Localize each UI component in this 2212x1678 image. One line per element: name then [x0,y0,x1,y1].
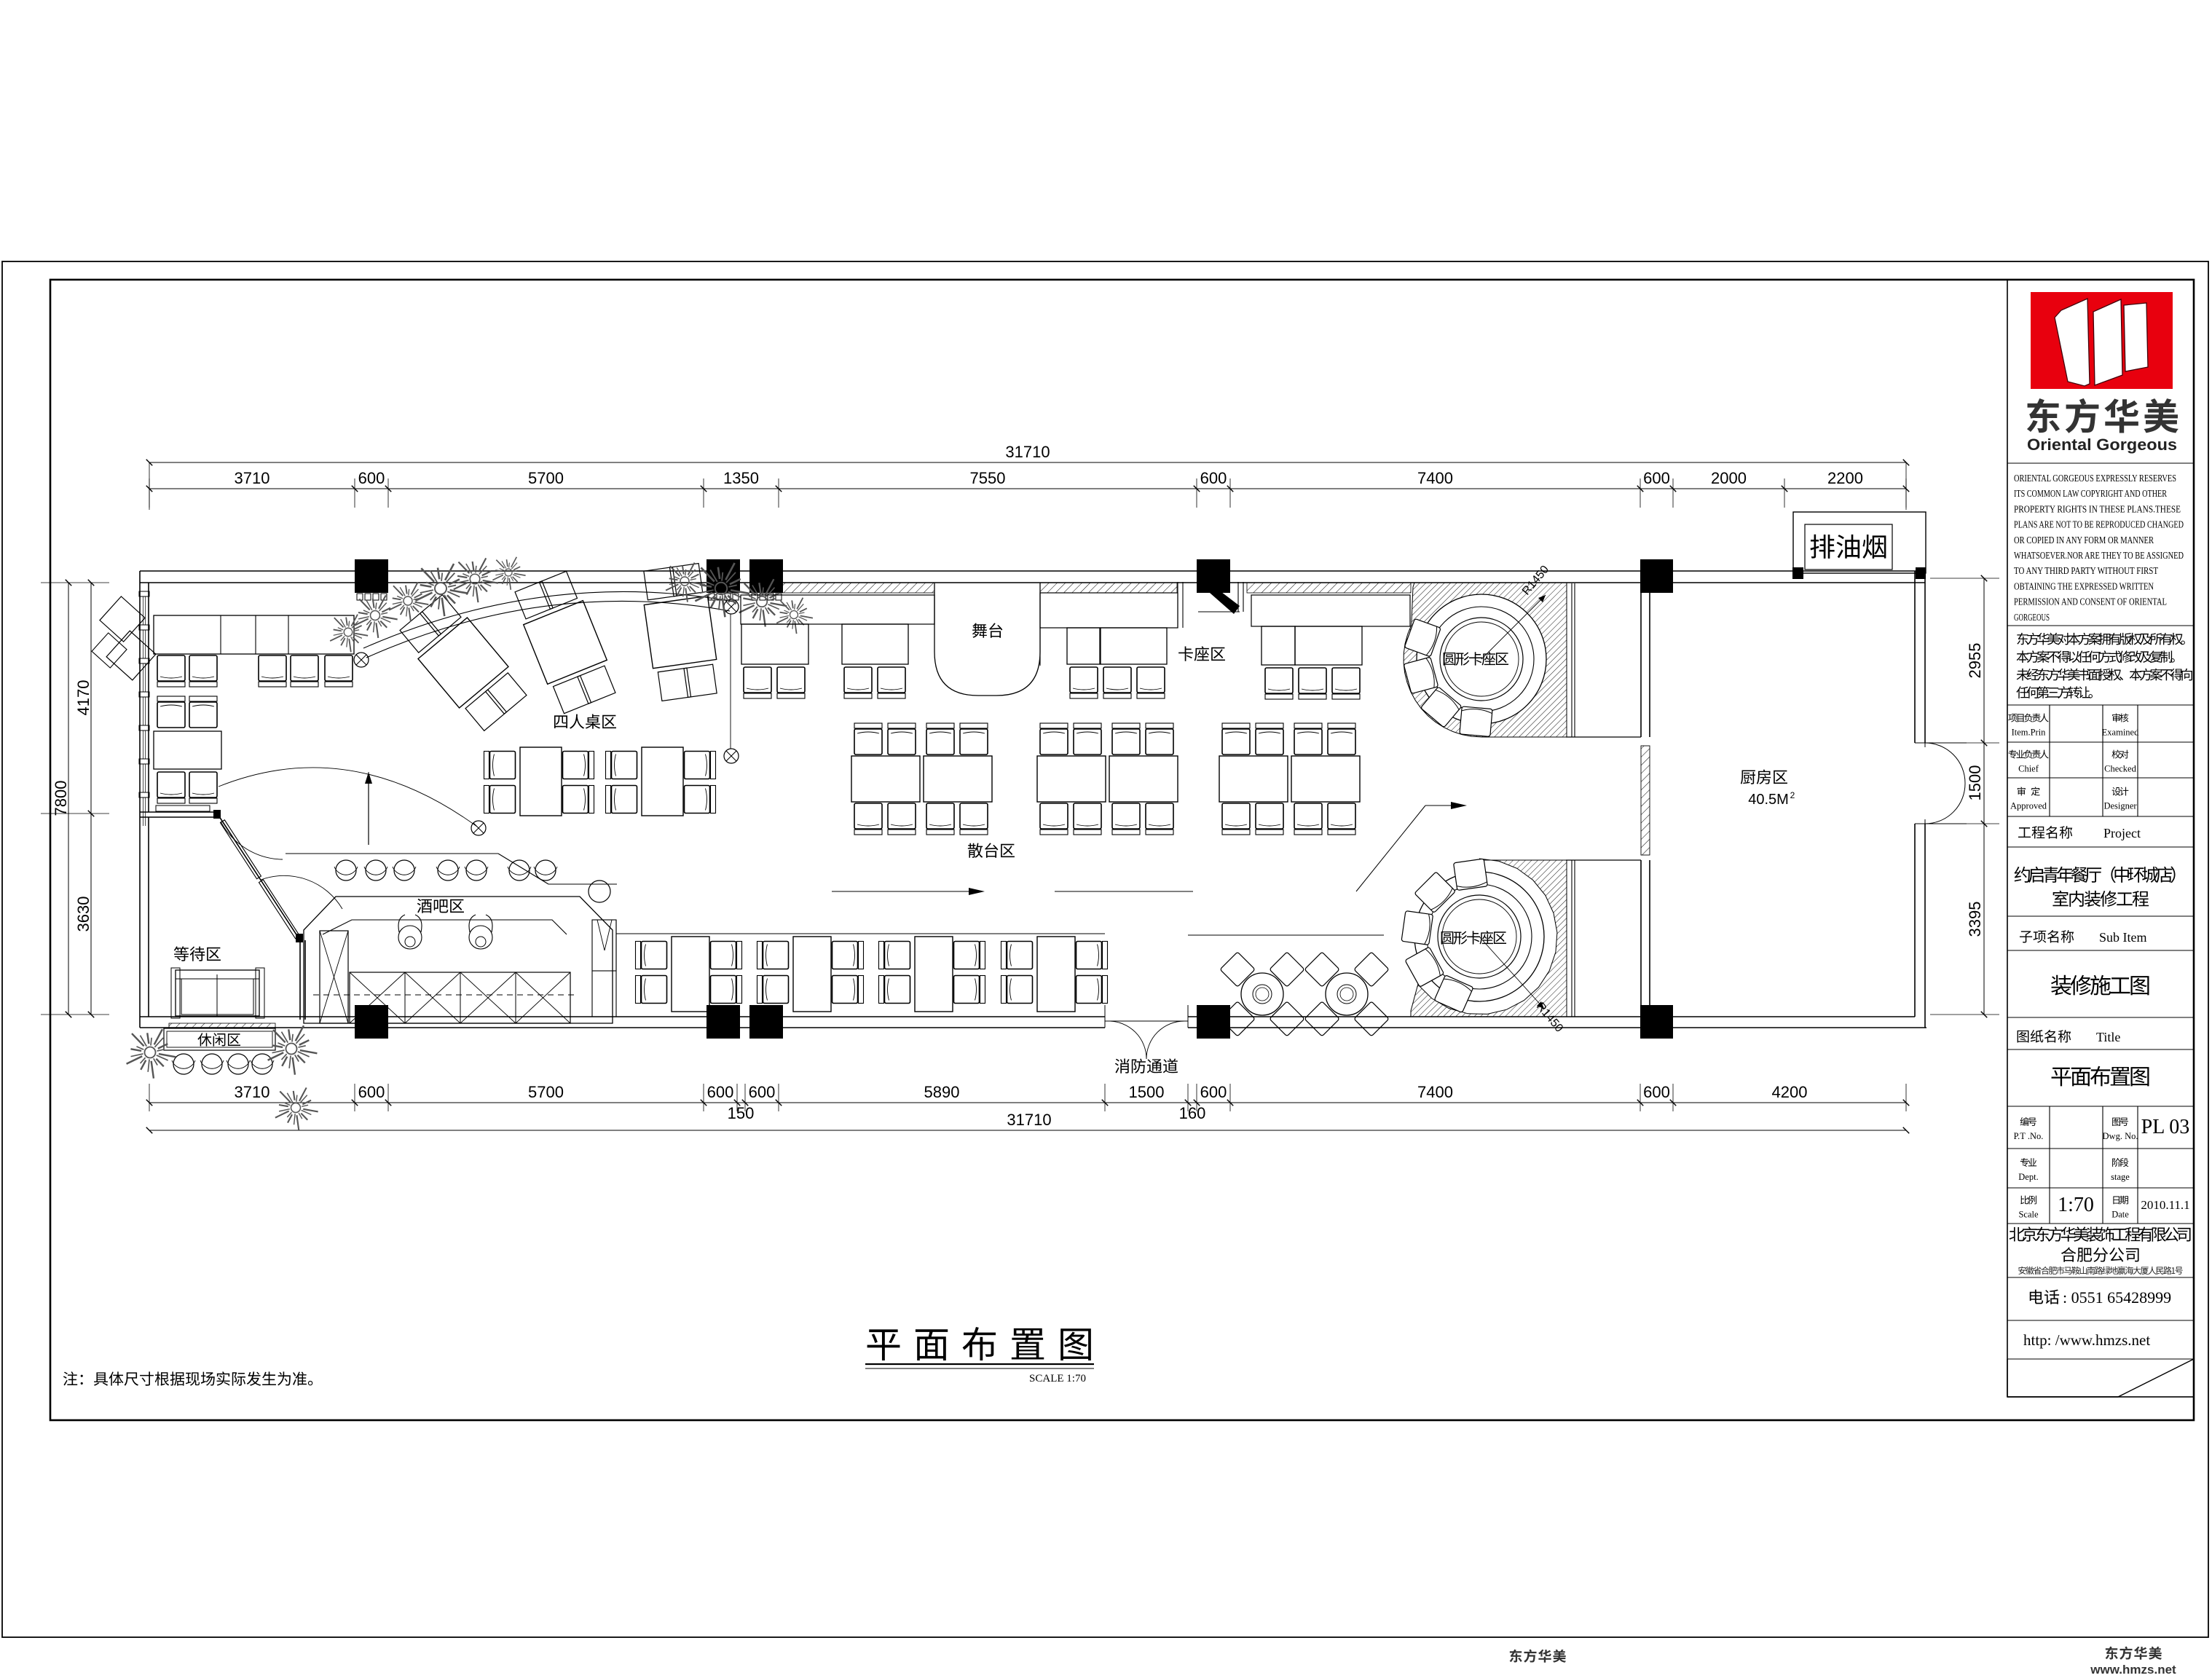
svg-text:600: 600 [1200,1083,1227,1101]
svg-text:600: 600 [358,469,385,487]
svg-text:5700: 5700 [528,1083,564,1101]
svg-text:7800: 7800 [52,781,70,816]
svg-text:1500: 1500 [1966,765,1984,801]
svg-text:160: 160 [1179,1104,1206,1122]
svg-text:ORIENTAL GORGEOUS EXPRESSLY RE: ORIENTAL GORGEOUS EXPRESSLY RESERVES [2014,473,2176,484]
svg-text:600: 600 [1643,1083,1670,1101]
svg-text:Approved: Approved [2010,801,2047,811]
svg-text:P.T .No.: P.T .No. [2014,1131,2044,1141]
svg-text:SCALE 1:70: SCALE 1:70 [1029,1373,1086,1384]
svg-text:: 0551 65428999: : 0551 65428999 [2063,1288,2171,1307]
svg-text:Designer: Designer [2103,801,2137,811]
svg-text:4170: 4170 [74,680,93,716]
svg-text:7550: 7550 [970,469,1006,487]
svg-text:http: /www.hmzs.net: http: /www.hmzs.net [2023,1331,2150,1349]
svg-text:PROPERTY RIGHTS IN THESE PLAN: PROPERTY RIGHTS IN THESE PLANS.THESE [2014,503,2181,514]
svg-text:Item.Prin: Item.Prin [2012,728,2047,738]
svg-text:Checked: Checked [2104,764,2136,774]
svg-text:Oriental Gorgeous: Oriental Gorgeous [2027,436,2177,454]
svg-text:PL 03: PL 03 [2141,1116,2190,1138]
svg-text:7400: 7400 [1417,469,1453,487]
svg-text:600: 600 [707,1083,734,1101]
svg-text:31710: 31710 [1007,1111,1051,1129]
svg-text:Title: Title [2096,1030,2120,1044]
svg-text:Date: Date [2111,1210,2129,1220]
svg-text:3710: 3710 [235,469,270,487]
svg-text:5700: 5700 [528,469,564,487]
svg-text:ITS COMMON LAW COPYRIGHT AND O: ITS COMMON LAW COPYRIGHT AND OTHER [2014,488,2167,499]
svg-text:3710: 3710 [235,1083,270,1101]
svg-text:WHATSOEVER.NOR ARE THEY TO BE: WHATSOEVER.NOR ARE THEY TO BE ASSIGNED [2014,550,2184,561]
svg-text:1350: 1350 [723,469,759,487]
svg-text:OBTAINING THE EXPRESSED WRITTE: OBTAINING THE EXPRESSED WRITTEN [2014,580,2154,591]
svg-text:Chief: Chief [2018,764,2039,774]
svg-text:Project: Project [2103,826,2141,840]
svg-text:2000: 2000 [1711,469,1747,487]
svg-text:600: 600 [1200,469,1227,487]
svg-text:Dwg. No.: Dwg. No. [2103,1131,2138,1141]
svg-text:600: 600 [1643,469,1670,487]
svg-text:stage: stage [2111,1172,2130,1182]
svg-text:Examined: Examined [2102,728,2139,738]
svg-text:1500: 1500 [1129,1083,1165,1101]
svg-text:Scale: Scale [2018,1210,2039,1220]
svg-text:3395: 3395 [1966,902,1984,937]
svg-text:2010.11.1: 2010.11.1 [2141,1198,2189,1212]
svg-text:PLANS ARE NOT TO BE REPRODUCED: PLANS ARE NOT TO BE REPRODUCED CHANGED [2014,519,2184,530]
svg-text:4200: 4200 [1772,1083,1808,1101]
svg-text:5890: 5890 [924,1083,960,1101]
svg-text:GORGEOUS: GORGEOUS [2014,612,2050,623]
svg-text:600: 600 [749,1083,776,1101]
svg-text:Dept.: Dept. [2018,1172,2038,1182]
svg-text:40.5M: 40.5M [1748,792,1789,808]
svg-text:PERMISSION AND CONSENT OF ORIE: PERMISSION AND CONSENT OF ORIENTAL [2014,596,2167,607]
svg-text:1:70: 1:70 [2058,1194,2094,1216]
svg-text:2200: 2200 [1827,469,1863,487]
svg-text:31710: 31710 [1005,443,1050,461]
svg-text:600: 600 [358,1083,385,1101]
svg-text:2955: 2955 [1966,643,1984,679]
svg-text:3630: 3630 [74,897,93,932]
svg-text:2: 2 [1790,790,1795,800]
svg-text:7400: 7400 [1417,1083,1453,1101]
svg-text:TO ANY THIRD PARTY WITHOUT FIR: TO ANY THIRD PARTY WITHOUT FIRST [2014,565,2159,576]
svg-text:www.hmzs.net: www.hmzs.net [2090,1663,2176,1677]
svg-text:Sub Item: Sub Item [2099,930,2147,945]
svg-text:150: 150 [728,1104,755,1122]
svg-text:OR COPIED IN ANY FORM OR MANNE: OR COPIED IN ANY FORM OR MANNER [2014,535,2154,545]
